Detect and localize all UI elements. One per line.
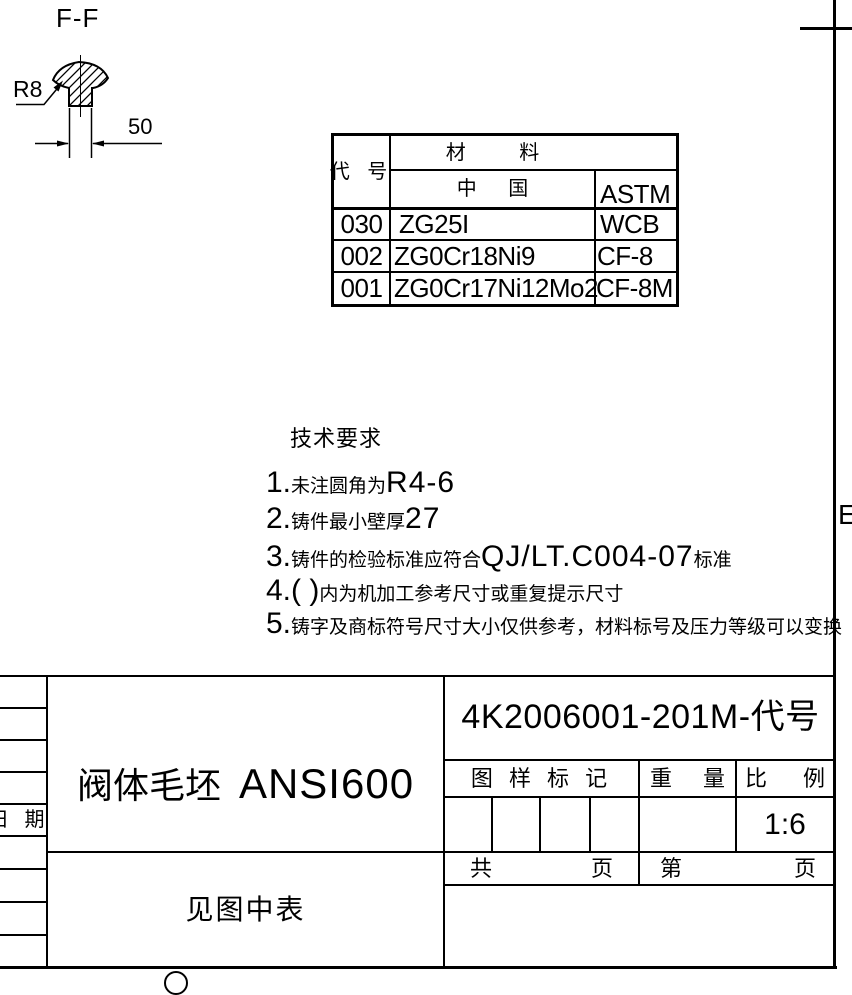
dim-arrow-left	[57, 141, 69, 147]
section-view: F-F 50 R8	[0, 0, 215, 175]
table-cell-astm: WCB	[600, 209, 676, 239]
table-cell-china: ZG25I	[399, 209, 594, 239]
table-cell-astm: CF-8M	[596, 273, 676, 303]
tech-item-4: 4.( )内为机加工参考尺寸或重复提示尺寸	[266, 576, 623, 606]
item-number: 1.	[266, 468, 291, 498]
item-number: 4.( )	[266, 576, 319, 606]
scale-label-left: 比	[745, 768, 767, 790]
item-text-latin: 27	[405, 504, 440, 534]
drawing-sheet: { "frame": { "zone_letter": "E" }, "sect…	[0, 0, 852, 978]
radius-callout: R8	[13, 76, 42, 102]
material-note-cell: 见图中表	[48, 853, 443, 966]
total-pages-cell: 共 页	[445, 853, 638, 884]
scale-label-right: 例	[803, 768, 825, 790]
item-number: 2.	[266, 504, 291, 534]
tech-item-5: 5.铸字及商标符号尺寸大小仅供参考，材料标号及压力等级可以变换	[266, 609, 842, 639]
item-text-latin: R4-6	[386, 468, 455, 498]
date-label: 日 期	[0, 810, 50, 830]
title-block-line	[0, 966, 837, 969]
col-header-china: 中 国	[391, 171, 594, 207]
table-cell-china: ZG0Cr18Ni9	[394, 241, 594, 271]
part-name-cell: 阀体毛坯 ANSI600	[48, 675, 443, 851]
zone-letter: E	[838, 501, 852, 529]
weight-label-left: 重	[650, 768, 672, 790]
item-text-zh: 内为机加工参考尺寸或重复提示尺寸	[319, 585, 623, 604]
section-label: F-F	[56, 3, 99, 33]
col-header-astm: ASTM	[596, 171, 680, 207]
item-number: 5.	[266, 609, 291, 639]
mark-header: 图 样 标 记	[445, 761, 638, 796]
width-dimension: 50	[128, 114, 152, 139]
zone-tick	[800, 27, 852, 30]
title-block-line	[0, 868, 46, 870]
scale-header: 比 例	[737, 761, 833, 796]
drawing-number: 4K2006001-201M-代号	[445, 675, 836, 759]
title-block-line	[589, 796, 591, 853]
title-block-line	[0, 771, 46, 773]
item-number: 3.	[266, 542, 291, 572]
tech-title: 技术要求	[290, 428, 382, 450]
tech-item-3: 3.铸件的检验标准应符合QJ/LT.C004-07标准	[266, 542, 732, 572]
item-text-zh: 标准	[694, 551, 732, 570]
scale-value: 1:6	[737, 798, 833, 851]
tech-item-1: 1.未注圆角为R4-6	[266, 468, 455, 498]
item-text-latin: QJ/LT.C004-07	[481, 542, 694, 572]
page-number-cell: 第 页	[640, 853, 836, 884]
title-block-line	[491, 796, 493, 853]
item-text-zh: 铸件的检验标准应符合	[291, 551, 481, 570]
dim-arrow-right	[92, 141, 104, 147]
item-text-zh: 铸字及商标符号尺寸大小仅供参考，材料标号及压力等级可以变换	[291, 618, 842, 637]
tech-item-2: 2.铸件最小壁厚27	[266, 504, 440, 534]
weight-label-right: 量	[703, 768, 725, 790]
item-text-zh: 铸件最小壁厚	[291, 513, 405, 532]
item-text-zh: 未注圆角为	[291, 477, 386, 496]
title-block-line	[0, 901, 46, 903]
weight-header: 重 量	[640, 761, 735, 796]
title-block-line	[0, 707, 46, 709]
part-standard: ANSI600	[239, 763, 414, 805]
table-cell-astm: CF-8	[597, 241, 676, 271]
title-block-line	[0, 739, 46, 741]
cut-circle-symbol	[164, 971, 188, 995]
page-number-label: 第	[660, 858, 682, 880]
table-line	[676, 133, 679, 307]
title-block-line	[0, 835, 46, 837]
table-cell-code: 030	[334, 209, 389, 239]
title-block-line	[0, 803, 46, 805]
title-block-line	[0, 934, 46, 936]
table-cell-code: 001	[334, 273, 389, 303]
title-block-line	[539, 796, 541, 853]
part-name: 阀体毛坯	[77, 768, 221, 804]
page-number-unit: 页	[794, 858, 816, 880]
table-cell-code: 002	[334, 241, 389, 271]
table-cell-china: ZG0Cr17Ni12Mo2	[394, 273, 594, 303]
col-header-code: 代 号	[334, 136, 389, 207]
total-pages-unit: 页	[591, 858, 613, 880]
col-header-material: 材 料	[391, 136, 594, 169]
sheet-border-right	[833, 0, 836, 969]
total-pages-label: 共	[470, 858, 492, 880]
table-line	[331, 304, 679, 307]
